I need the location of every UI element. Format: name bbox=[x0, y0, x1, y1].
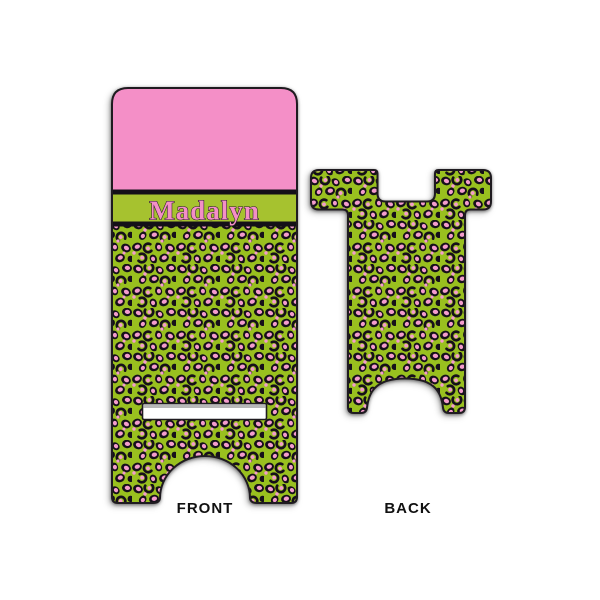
mockup-canvas: Madalyn FRONT BACK bbox=[0, 0, 600, 600]
slot-inner-shadow bbox=[144, 405, 266, 409]
front-divider-line-top bbox=[110, 190, 300, 195]
phone-stand-back-view bbox=[309, 168, 493, 415]
back-view-label: BACK bbox=[338, 500, 478, 517]
front-leopard-pattern-area bbox=[110, 227, 300, 505]
phone-stand-front-view: Madalyn bbox=[110, 86, 300, 505]
phone-stand-mockup-image: Madalyn bbox=[0, 0, 600, 600]
phone-slot-cutout bbox=[143, 404, 267, 420]
personalized-name-text: Madalyn bbox=[149, 196, 260, 226]
front-pink-section bbox=[110, 86, 300, 190]
front-view-label: FRONT bbox=[135, 500, 275, 517]
